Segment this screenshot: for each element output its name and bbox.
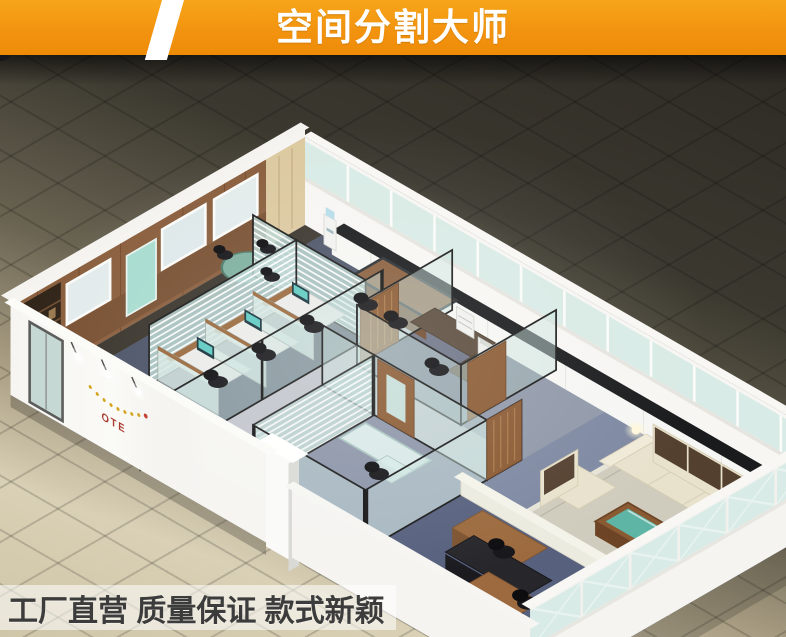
banner-slash-decoration	[145, 0, 185, 60]
slogan-text: 工厂直营 质量保证 款式新颖	[0, 586, 385, 630]
banner-title: 空间分割大师	[276, 0, 510, 55]
light-glow	[30, 125, 710, 585]
product-image: OTE	[0, 0, 786, 637]
slogan-band: 工厂直营 质量保证 款式新颖	[0, 585, 396, 630]
office-scene: OTE	[0, 55, 786, 637]
top-banner: 空间分割大师	[0, 0, 786, 55]
